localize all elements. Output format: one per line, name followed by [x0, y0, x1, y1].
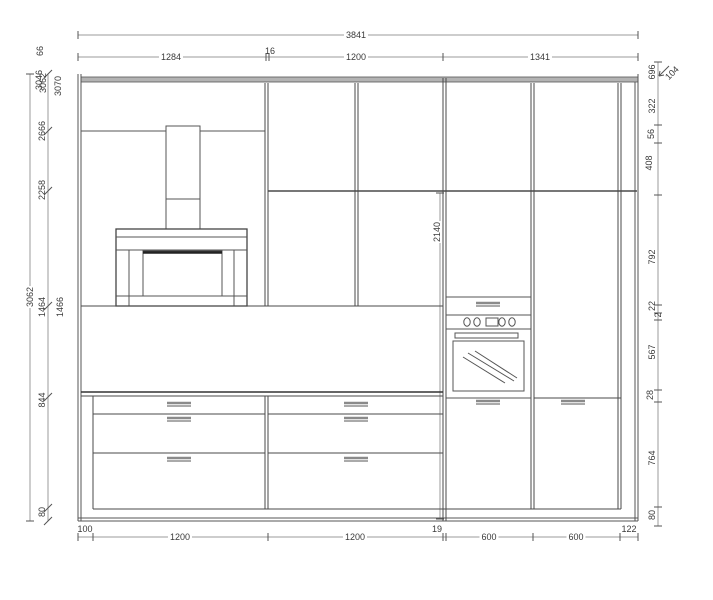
dim-left-level-80: 80 — [37, 507, 47, 517]
oven-glass-reflection — [463, 351, 517, 383]
dim-top-seg-3: 1341 — [528, 52, 552, 62]
dim-bottom-seg-5: 600 — [566, 532, 585, 542]
dim-left-level-1464: 1464 — [37, 297, 47, 317]
dim-right-696: 696 — [647, 64, 657, 79]
dim-left-level-1466: 1466 — [55, 297, 65, 317]
dim-right-764: 764 — [647, 450, 657, 465]
dim-right-2: 2 — [653, 312, 663, 317]
dim-left-level-2666: 2666 — [37, 121, 47, 141]
dim-right-56: 56 — [646, 129, 656, 139]
tall-units — [443, 78, 621, 521]
dim-left-level-844: 844 — [37, 392, 47, 407]
dim-top-seg-1: 16 — [265, 46, 275, 56]
chimney-hood — [81, 126, 265, 306]
oven — [446, 297, 531, 398]
dim-right-28: 28 — [645, 390, 655, 400]
dim-bottom-seg-1: 1200 — [168, 532, 192, 542]
base-cabinets — [81, 392, 621, 509]
dim-bottom-seg-2: 1200 — [343, 532, 367, 542]
dim-bottom-seg-0: 100 — [77, 524, 92, 534]
elevation-linework — [0, 0, 713, 600]
dim-top-total: 3841 — [344, 30, 368, 40]
dim-left-top-3062: 3062 — [38, 73, 48, 93]
dim-bottom-seg-4: 600 — [479, 532, 498, 542]
dim-right-22: 22 — [647, 301, 657, 311]
dim-bottom-seg-6: 122 — [621, 524, 636, 534]
dim-right-792: 792 — [647, 249, 657, 264]
dim-tall-unit-height: 2140 — [432, 221, 442, 243]
dim-left-top-66: 66 — [35, 46, 45, 56]
dim-right-322: 322 — [647, 98, 657, 113]
oven-handle-bar — [455, 333, 518, 338]
dim-left-level-2258: 2258 — [37, 180, 47, 200]
dim-top-seg-0: 1284 — [159, 52, 183, 62]
kitchen-elevation-drawing: 3841 1284 16 1200 1341 100 1200 1200 19 … — [0, 0, 713, 600]
dim-left-top-3070: 3070 — [53, 76, 63, 96]
dim-right-567: 567 — [647, 344, 657, 359]
dim-left-total: 3062 — [25, 286, 35, 308]
dim-bottom-seg-3: 19 — [432, 524, 442, 534]
dim-top-seg-2: 1200 — [344, 52, 368, 62]
dim-right-408: 408 — [644, 155, 654, 170]
handles — [167, 303, 585, 461]
dim-right-80: 80 — [647, 510, 657, 520]
oven-knobs — [464, 318, 515, 326]
